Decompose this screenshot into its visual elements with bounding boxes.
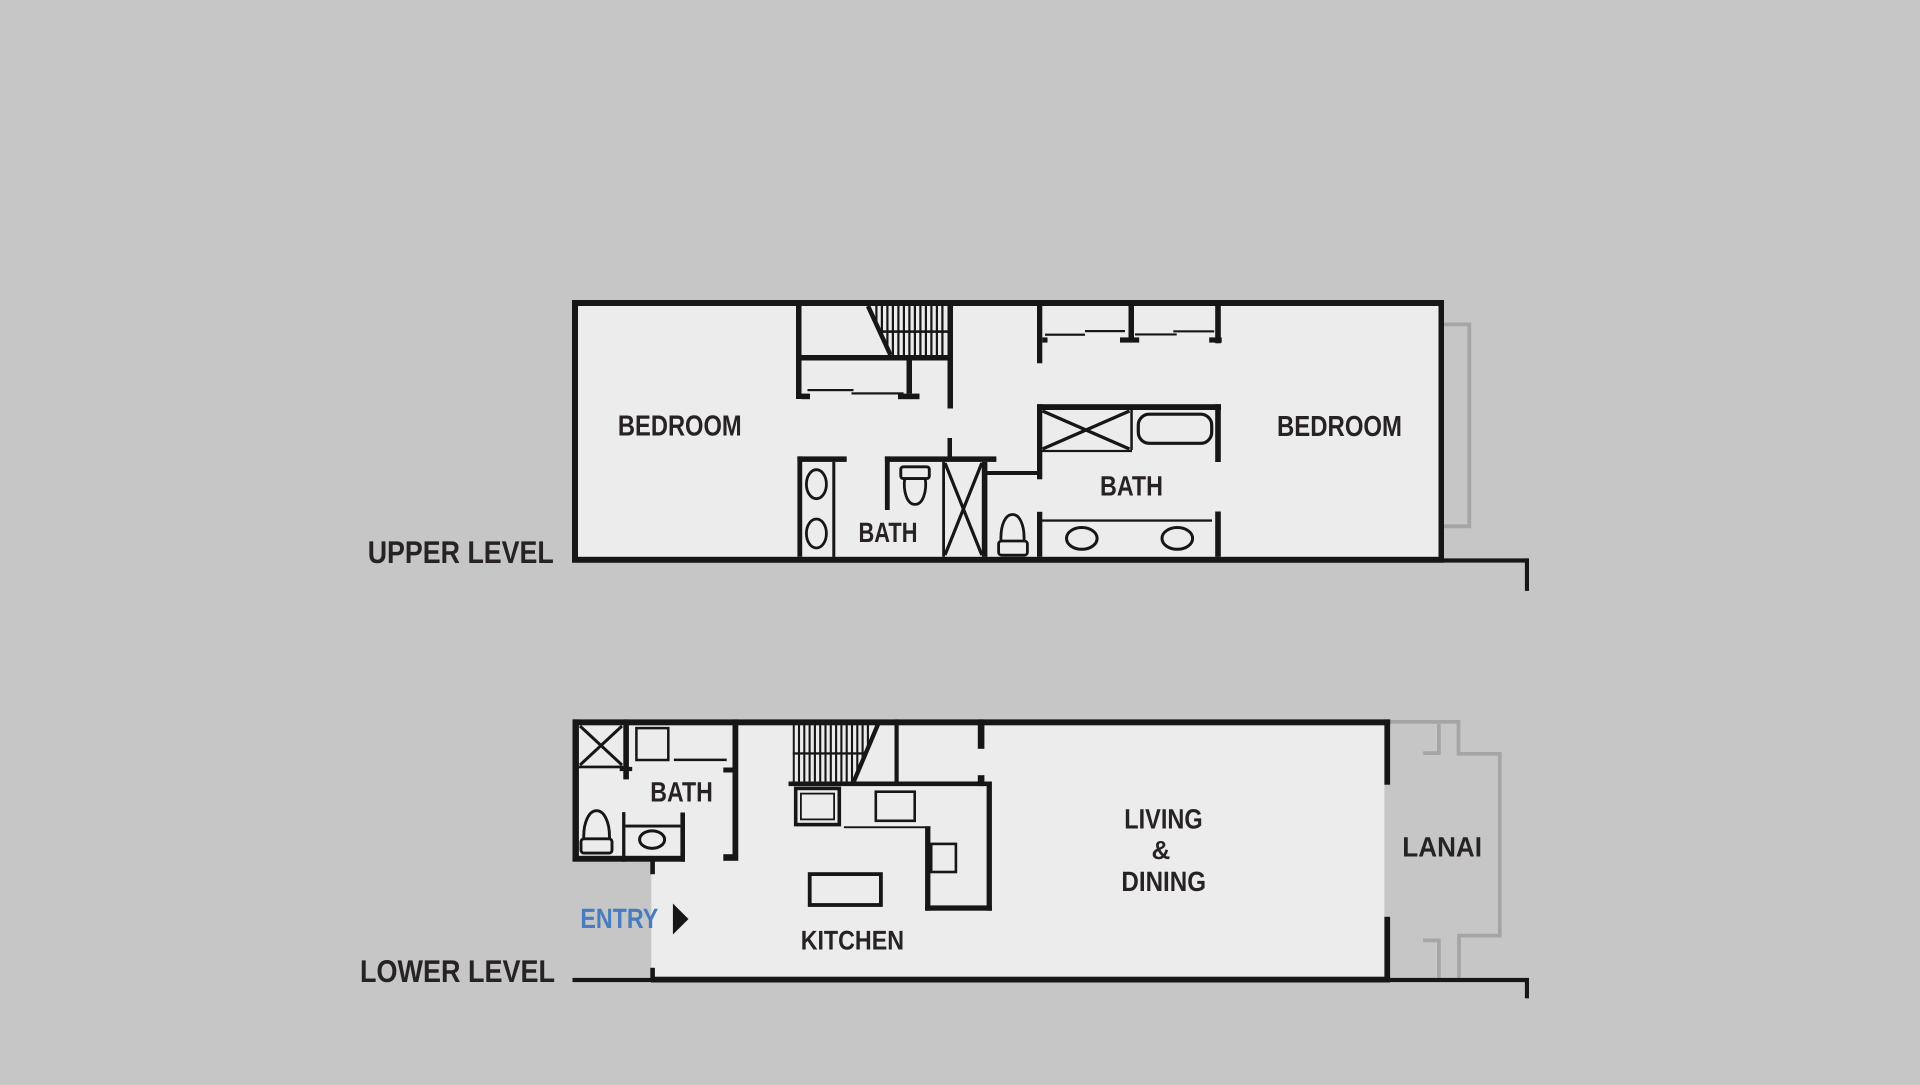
svg-text:LOWER LEVEL: LOWER LEVEL xyxy=(360,953,555,989)
svg-text:BEDROOM: BEDROOM xyxy=(1277,411,1402,443)
svg-text:LIVING: LIVING xyxy=(1124,804,1202,835)
svg-text:DINING: DINING xyxy=(1121,866,1206,897)
svg-text:BEDROOM: BEDROOM xyxy=(618,410,742,442)
svg-text:KITCHEN: KITCHEN xyxy=(801,925,904,955)
svg-text:BATH: BATH xyxy=(859,517,918,548)
svg-text:UPPER LEVEL: UPPER LEVEL xyxy=(368,534,554,570)
svg-text:BATH: BATH xyxy=(1100,470,1163,501)
svg-text:ENTRY: ENTRY xyxy=(580,903,658,934)
svg-text:BATH: BATH xyxy=(650,777,713,808)
svg-text:&: & xyxy=(1152,835,1171,865)
svg-text:LANAI: LANAI xyxy=(1402,831,1482,862)
